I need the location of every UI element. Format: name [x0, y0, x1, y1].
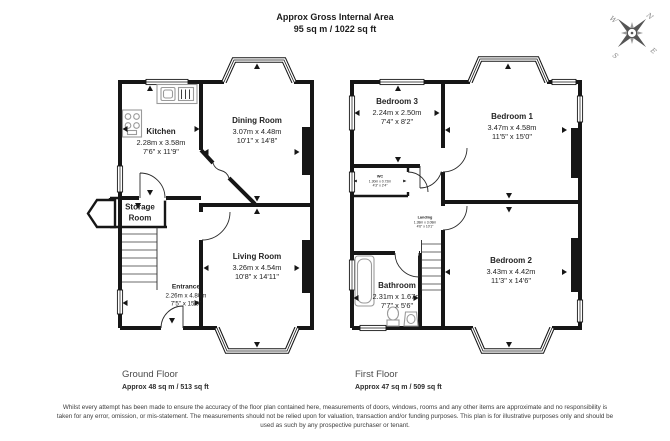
- storage-door: [88, 200, 115, 227]
- room-name: Storage Room: [115, 202, 165, 223]
- room-dim-imperial: 7'6" x 11'9": [137, 147, 186, 157]
- room-name: Kitchen: [137, 127, 186, 138]
- chimney-bedroom1: [571, 128, 579, 178]
- door-bedroom3: [420, 163, 442, 188]
- room-label-bedroom2: Bedroom 2 3.43m x 4.42m 11'3" x 14'6": [487, 256, 536, 286]
- bay-window-living: [217, 328, 297, 351]
- floor-name: Ground Floor: [122, 369, 209, 382]
- room-label-bathroom: Bathroom 2.31m x 1.67m 7'7" x 5'6": [373, 281, 422, 311]
- compass-s: S: [611, 51, 620, 60]
- stairs-first: [422, 240, 442, 290]
- room-dim-metric: 3.47m x 4.58m: [488, 123, 537, 133]
- room-label-wc: WC 1.30m x 0.72m 4'3" x 2'4": [369, 174, 391, 187]
- room-name: Bedroom 2: [487, 256, 536, 267]
- window-bedroom3-left: [349, 96, 354, 130]
- room-label-entrance: Entrance 2.26m x 4.80m 7'5" x 15'9": [166, 283, 207, 308]
- room-dim-imperial: 11'3" x 14'6": [487, 276, 536, 286]
- ground-floor-label: Ground Floor Approx 48 sq m / 513 sq ft: [122, 369, 209, 392]
- room-label-storage: Storage Room: [115, 202, 165, 223]
- room-name: Bedroom 3: [373, 97, 422, 108]
- door-wc: [408, 172, 428, 192]
- chimney-living: [302, 240, 310, 293]
- window-entrance-left: [117, 290, 122, 314]
- room-label-dining: Dining Room 3.07m x 4.48m 10'1" x 14'8": [232, 116, 282, 146]
- room-dim-metric: 2.24m x 2.50m: [373, 108, 422, 118]
- compass-e: E: [648, 46, 658, 56]
- window-bedroom2-right: [577, 300, 582, 322]
- door-kitchen: [139, 173, 166, 201]
- room-name: Entrance: [166, 283, 207, 292]
- room-name: Bedroom 1: [488, 112, 537, 123]
- room-dim-metric: 2.26m x 4.80m: [166, 292, 207, 300]
- room-dim-imperial: 11'5" x 15'0": [488, 132, 537, 142]
- basin-icon: [404, 312, 418, 326]
- bay-window-bedroom1: [470, 59, 547, 82]
- door-bedroom1: [440, 148, 467, 172]
- stairs-ground: [122, 227, 157, 290]
- room-dim-metric: 3.26m x 4.54m: [233, 263, 282, 273]
- floor-area: Approx 48 sq m / 513 sq ft: [122, 383, 209, 392]
- room-dim-metric: 2.28m x 3.58m: [137, 138, 186, 148]
- room-dim-imperial: 4'6" x 10'1": [414, 224, 436, 228]
- room-dim-metric: 3.43m x 4.42m: [487, 267, 536, 277]
- window-bedroom1-right: [577, 96, 582, 122]
- disclaimer-text: Whilst every attempt has been made to en…: [55, 404, 615, 431]
- door-living: [198, 212, 230, 240]
- sink-icon: [157, 85, 197, 104]
- window-bedroom3-top: [380, 79, 424, 84]
- window-wc-left: [349, 172, 354, 192]
- window-bathroom-bottom: [360, 325, 386, 330]
- bay-window-bedroom2: [473, 328, 552, 351]
- room-dim-imperial: 10'8" x 14'11": [233, 272, 282, 282]
- room-label-landing: Landing 1.38m x 3.08m 4'6" x 10'1": [414, 215, 436, 228]
- room-dim-imperial: 4'3" x 2'4": [369, 183, 391, 187]
- room-name: Bathroom: [373, 281, 422, 292]
- window-bathroom-left: [349, 260, 354, 290]
- room-label-kitchen: Kitchen 2.28m x 3.58m 7'6" x 11'9": [137, 127, 186, 157]
- door-hall-dining: [213, 163, 229, 178]
- window-kitchen-left: [117, 166, 122, 192]
- room-label-living: Living Room 3.26m x 4.54m 10'8" x 14'11": [233, 252, 282, 282]
- chimney-dining: [302, 127, 310, 175]
- window-kitchen-top: [146, 79, 188, 84]
- room-label-bedroom3: Bedroom 3 2.24m x 2.50m 7'4" x 8'2": [373, 97, 422, 127]
- room-dim-metric: 2.31m x 1.67m: [373, 292, 422, 302]
- room-name: Living Room: [233, 252, 282, 263]
- room-dim-metric: 3.07m x 4.48m: [232, 127, 282, 137]
- floor-area: Approx 47 sq m / 509 sq ft: [355, 383, 442, 392]
- room-dim-imperial: 7'4" x 8'2": [373, 117, 422, 127]
- compass-w: W: [608, 14, 619, 25]
- floor-name: First Floor: [355, 369, 442, 382]
- room-dim-imperial: 7'5" x 15'9": [166, 300, 207, 308]
- chimney-bedroom2: [571, 238, 579, 292]
- room-dim-imperial: 7'7" x 5'6": [373, 301, 422, 311]
- room-name: Dining Room: [232, 116, 282, 127]
- window-bedroom1-top: [552, 79, 576, 84]
- first-floor-label: First Floor Approx 47 sq m / 509 sq ft: [355, 369, 442, 392]
- bay-window-dining: [224, 60, 294, 82]
- compass-n: N: [644, 11, 655, 22]
- door-bathroom: [395, 250, 419, 277]
- room-label-bedroom1: Bedroom 1 3.47m x 4.58m 11'5" x 15'0": [488, 112, 537, 142]
- door-bedroom2: [440, 206, 467, 230]
- floor-plan-canvas: N E S W: [0, 0, 670, 441]
- compass-icon: N E S W: [608, 11, 658, 61]
- room-dim-imperial: 10'1" x 14'8": [232, 136, 282, 146]
